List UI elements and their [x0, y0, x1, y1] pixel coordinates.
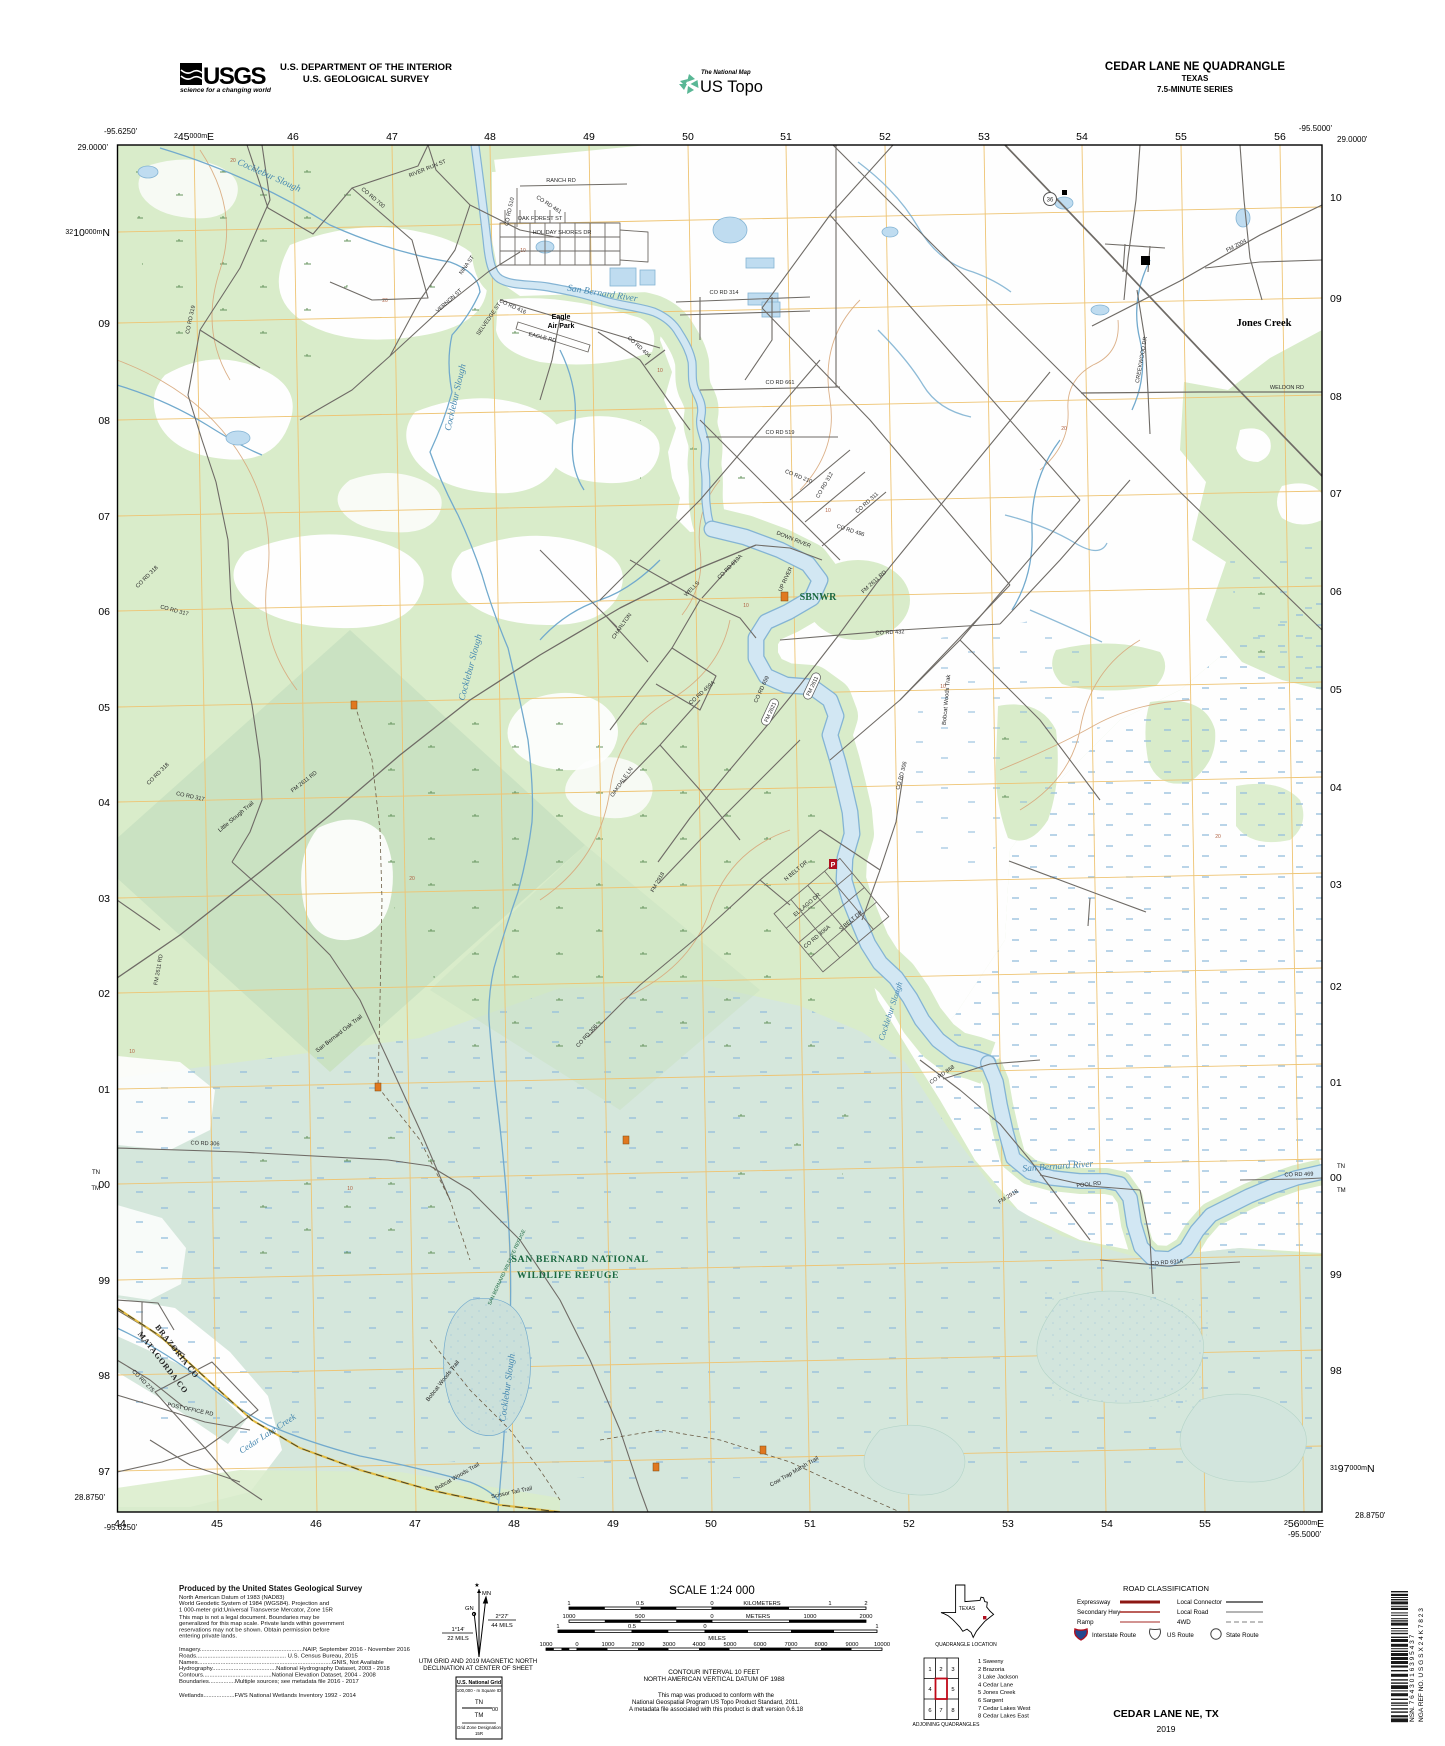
svg-text:This map was produced to confo: This map was produced to conform with th…: [658, 1693, 775, 1699]
svg-text:2019: 2019: [1157, 1724, 1176, 1734]
svg-text:7000: 7000: [785, 1642, 798, 1648]
svg-text:10: 10: [825, 508, 831, 514]
svg-text:2 Brazoria: 2 Brazoria: [978, 1667, 1005, 1673]
svg-text:28.8750': 28.8750': [75, 1493, 106, 1502]
svg-text:SAN BERNARD NATIONAL: SAN BERNARD NATIONAL: [511, 1254, 648, 1265]
svg-text:UTM GRID AND 2019 MAGNETIC NOR: UTM GRID AND 2019 MAGNETIC NORTH: [419, 1658, 538, 1665]
svg-text:TM: TM: [475, 1713, 484, 1719]
svg-text:10: 10: [657, 368, 663, 374]
svg-text:10000: 10000: [874, 1642, 890, 1648]
svg-text:The National Map: The National Map: [701, 70, 751, 76]
svg-text:49: 49: [607, 1518, 619, 1530]
svg-text:1000: 1000: [602, 1642, 615, 1648]
svg-text:-95.6250': -95.6250': [104, 127, 138, 136]
svg-text:Names.........................: Names...................................…: [179, 1660, 385, 1666]
svg-text:MN: MN: [482, 1591, 491, 1597]
svg-text:1: 1: [567, 1601, 570, 1607]
svg-text:4: 4: [928, 1687, 932, 1693]
svg-text:QUADRANGLE LOCATION: QUADRANGLE LOCATION: [935, 1642, 997, 1648]
svg-text:WILDLIFE REFUGE: WILDLIFE REFUGE: [517, 1270, 619, 1281]
svg-text:28.8750': 28.8750': [1355, 1511, 1386, 1520]
svg-text:256000mE: 256000mE: [1284, 1518, 1324, 1530]
svg-text:entering private lands.: entering private lands.: [179, 1634, 237, 1640]
svg-text:reservations may not be shown.: reservations may not be shown. Obtain pe…: [179, 1627, 330, 1633]
svg-text:55: 55: [1199, 1518, 1211, 1530]
svg-text:1: 1: [828, 1601, 831, 1607]
svg-text:This map is not a legal docume: This map is not a legal document. Bounda…: [179, 1615, 320, 1621]
svg-text:Local Road: Local Road: [1177, 1609, 1209, 1616]
svg-text:3 Lake Jackson: 3 Lake Jackson: [978, 1675, 1018, 1681]
svg-text:4WD: 4WD: [1177, 1619, 1191, 1626]
svg-text:10: 10: [347, 1186, 353, 1192]
svg-text:Expressway: Expressway: [1077, 1599, 1111, 1606]
svg-text:7: 7: [939, 1708, 942, 1714]
svg-text:3197000mN: 3197000mN: [1330, 1463, 1375, 1475]
svg-text:HOLIDAY SHORES DR: HOLIDAY SHORES DR: [533, 230, 592, 236]
svg-text:Jones Creek: Jones Creek: [1237, 318, 1292, 329]
svg-text:15R: 15R: [475, 1731, 483, 1736]
svg-text:1: 1: [556, 1624, 559, 1630]
svg-text:U.S. National Grid: U.S. National Grid: [457, 1680, 501, 1686]
svg-text:science for a changing world: science for a changing world: [180, 87, 272, 94]
svg-text:46: 46: [310, 1518, 322, 1530]
svg-text:SBNWR: SBNWR: [800, 592, 837, 603]
svg-text:NSN. 7 6 4 3 0 1 6 3 9 5 4 3: NSN. 7 6 4 3 0 1 6 3 9 5 4 3 7: [1409, 1634, 1416, 1722]
svg-text:09: 09: [1330, 293, 1342, 305]
svg-text:National Geospatial Program US: National Geospatial Program US Topo Prod…: [632, 1700, 800, 1706]
svg-text:USGS: USGS: [203, 63, 267, 90]
svg-text:CEDAR LANE NE QUADRANGLE: CEDAR LANE NE QUADRANGLE: [1105, 61, 1286, 73]
svg-text:500: 500: [635, 1614, 645, 1620]
svg-text:US Route: US Route: [1167, 1632, 1194, 1639]
svg-text:54: 54: [1101, 1518, 1113, 1530]
svg-text:20: 20: [382, 298, 388, 304]
svg-text:36: 36: [1047, 198, 1054, 204]
svg-text:ADJOINING QUADRANGLES: ADJOINING QUADRANGLES: [913, 1722, 981, 1728]
svg-text:6000: 6000: [754, 1642, 767, 1648]
svg-text:2: 2: [864, 1601, 867, 1607]
svg-text:1000: 1000: [540, 1642, 553, 1648]
svg-text:-95.6250': -95.6250': [104, 1523, 138, 1532]
svg-text:01: 01: [98, 1084, 110, 1096]
svg-text:20: 20: [1061, 426, 1067, 432]
svg-text:46: 46: [287, 131, 299, 143]
svg-text:NORTH AMERICAN VERTICAL DATUM: NORTH AMERICAN VERTICAL DATUM OF 1988: [643, 1676, 785, 1683]
svg-text:WELDON RD: WELDON RD: [1270, 385, 1304, 391]
svg-text:CO RD 519: CO RD 519: [766, 430, 795, 436]
svg-text:04: 04: [98, 797, 110, 809]
svg-text:Roads.........................: Roads...................................…: [179, 1653, 358, 1659]
svg-text:Wetlands...................FWS: Wetlands...................FWS National …: [179, 1693, 357, 1699]
svg-text:Air Park: Air Park: [548, 323, 575, 330]
svg-text:CONTOUR INTERVAL 10 FEET: CONTOUR INTERVAL 10 FEET: [668, 1669, 759, 1676]
svg-text:52: 52: [879, 131, 891, 143]
svg-text:02: 02: [1330, 981, 1342, 993]
svg-text:KILOMETERS: KILOMETERS: [743, 1601, 780, 1607]
svg-text:04: 04: [1330, 782, 1342, 794]
svg-text:CO RD 661: CO RD 661: [766, 380, 795, 386]
svg-text:Boundaries................Mult: Boundaries................Multiple sourc…: [179, 1679, 359, 1685]
svg-text:TN: TN: [1337, 1164, 1345, 1170]
svg-text:0: 0: [710, 1614, 713, 1620]
svg-text:05: 05: [1330, 684, 1342, 696]
svg-text:53: 53: [1002, 1518, 1014, 1530]
svg-text:02: 02: [98, 988, 110, 1000]
svg-text:1: 1: [875, 1624, 878, 1630]
svg-text:SCALE 1:24 000: SCALE 1:24 000: [669, 1585, 755, 1597]
svg-text:0: 0: [703, 1624, 706, 1630]
svg-text:NGA REF NO. U S G S X 2 4 K 7: NGA REF NO. U S G S X 2 4 K 7 8 2 3: [1418, 1608, 1425, 1722]
svg-text:49: 49: [583, 131, 595, 143]
svg-text:0.5: 0.5: [628, 1624, 636, 1630]
svg-text:05: 05: [98, 702, 110, 714]
svg-text:51: 51: [804, 1518, 816, 1530]
svg-text:09: 09: [98, 318, 110, 330]
svg-text:07: 07: [1330, 488, 1342, 500]
svg-text:Local Connector: Local Connector: [1177, 1599, 1222, 1606]
svg-text:DECLINATION AT CENTER OF SHEET: DECLINATION AT CENTER OF SHEET: [423, 1665, 533, 1672]
svg-text:07: 07: [98, 511, 110, 523]
svg-text:44 MILS: 44 MILS: [491, 1623, 513, 1629]
svg-text:00: 00: [1330, 1172, 1342, 1184]
svg-text:06: 06: [1330, 586, 1342, 598]
svg-text:52: 52: [903, 1518, 915, 1530]
svg-text:3: 3: [951, 1667, 954, 1673]
svg-text:CO RD 314: CO RD 314: [710, 290, 739, 296]
svg-text:0.5: 0.5: [636, 1601, 644, 1607]
svg-text:08: 08: [98, 415, 110, 427]
svg-text:03: 03: [98, 893, 110, 905]
svg-text:8000: 8000: [815, 1642, 828, 1648]
svg-text:CEDAR LANE NE, TX: CEDAR LANE NE, TX: [1113, 1708, 1219, 1720]
svg-text:2: 2: [939, 1667, 942, 1673]
svg-text:Secondary Hwy: Secondary Hwy: [1077, 1609, 1121, 1616]
svg-text:6 Sargent: 6 Sargent: [978, 1698, 1004, 1704]
svg-text:06: 06: [98, 606, 110, 618]
svg-text:7 Cedar Lakes West: 7 Cedar Lakes West: [978, 1706, 1031, 1712]
svg-text:5 Jones Creek: 5 Jones Creek: [978, 1690, 1015, 1696]
svg-text:1: 1: [928, 1667, 931, 1673]
svg-text:10: 10: [743, 603, 749, 609]
svg-text:51: 51: [780, 131, 792, 143]
svg-text:00: 00: [98, 1179, 110, 1191]
svg-text:RANCH RD: RANCH RD: [546, 178, 576, 184]
svg-text:TN: TN: [92, 1170, 100, 1176]
svg-text:8: 8: [951, 1708, 954, 1714]
svg-text:U.S. DEPARTMENT OF THE INTERIO: U.S. DEPARTMENT OF THE INTERIOR: [280, 62, 452, 73]
svg-text:29.0000': 29.0000': [78, 143, 109, 152]
svg-text:53: 53: [978, 131, 990, 143]
svg-text:4000: 4000: [693, 1642, 706, 1648]
svg-text:98: 98: [98, 1370, 110, 1382]
svg-text:2°27': 2°27': [495, 1614, 508, 1620]
svg-text:29.0000': 29.0000': [1337, 135, 1368, 144]
svg-text:Contours......................: Contours................................…: [179, 1673, 376, 1679]
svg-text:CO RD 306: CO RD 306: [190, 1140, 219, 1147]
svg-text:10: 10: [1330, 192, 1342, 204]
svg-text:54: 54: [1076, 131, 1088, 143]
svg-text:TM: TM: [1337, 1188, 1346, 1194]
svg-text:5: 5: [951, 1687, 954, 1693]
svg-text:1 000-meter grid:Universal Tra: 1 000-meter grid:Universal Transverse Me…: [179, 1607, 333, 1613]
svg-text:TEXAS: TEXAS: [1182, 74, 1209, 83]
svg-text:Interstate Route: Interstate Route: [1092, 1632, 1137, 1639]
svg-text:47: 47: [409, 1518, 421, 1530]
svg-text:generalized for this map scale: generalized for this map scale. Private …: [179, 1621, 344, 1627]
svg-text:North American Datum of 1983 (: North American Datum of 1983 (NAD83): [179, 1595, 284, 1601]
svg-text:Grid Zone Designation: Grid Zone Designation: [457, 1725, 501, 1730]
svg-text:3210000mN: 3210000mN: [65, 227, 110, 239]
svg-text:GN: GN: [465, 1606, 474, 1612]
svg-text:ROAD CLASSIFICATION: ROAD CLASSIFICATION: [1123, 1584, 1209, 1593]
svg-text:-95.5000': -95.5000': [1299, 124, 1333, 133]
svg-text:20: 20: [409, 876, 415, 882]
svg-text:01: 01: [1330, 1077, 1342, 1089]
svg-text:METERS: METERS: [746, 1614, 770, 1620]
svg-text:3000: 3000: [663, 1642, 676, 1648]
svg-text:TM: TM: [91, 1186, 100, 1192]
svg-text:1°14': 1°14': [451, 1627, 464, 1633]
svg-text:45: 45: [211, 1518, 223, 1530]
svg-text:4 Cedar Lane: 4 Cedar Lane: [978, 1682, 1013, 1688]
svg-text:55: 55: [1175, 131, 1187, 143]
svg-text:48: 48: [508, 1518, 520, 1530]
svg-text:2000: 2000: [632, 1642, 645, 1648]
svg-text:20: 20: [230, 158, 236, 164]
svg-text:56: 56: [1274, 131, 1286, 143]
svg-text:1000: 1000: [563, 1614, 576, 1620]
svg-text:0: 0: [710, 1601, 713, 1607]
svg-text:World Geodetic System of 1984: World Geodetic System of 1984 (WGS84). P…: [179, 1601, 329, 1607]
svg-text:50: 50: [682, 131, 694, 143]
svg-text:97: 97: [98, 1466, 110, 1478]
svg-text:50: 50: [705, 1518, 717, 1530]
svg-text:TN: TN: [475, 1700, 483, 1706]
svg-text:Eagle: Eagle: [552, 314, 571, 321]
svg-text:00: 00: [492, 1707, 498, 1713]
svg-text:48: 48: [484, 131, 496, 143]
svg-text:1000: 1000: [804, 1614, 817, 1620]
svg-text:245000mE: 245000mE: [174, 131, 214, 143]
svg-text:US Topo: US Topo: [700, 78, 763, 96]
svg-text:99: 99: [98, 1275, 110, 1287]
svg-text:0: 0: [575, 1642, 578, 1648]
svg-text:2000: 2000: [860, 1614, 873, 1620]
svg-text:TEXAS: TEXAS: [959, 1606, 976, 1612]
svg-text:A metadata file associated wit: A metadata file associated with this pro…: [629, 1707, 804, 1713]
svg-text:03: 03: [1330, 879, 1342, 891]
svg-text:1 Sweeny: 1 Sweeny: [978, 1659, 1004, 1665]
svg-text:Imagery.......................: Imagery.................................…: [179, 1647, 411, 1653]
svg-text:10: 10: [129, 1049, 135, 1055]
svg-text:8 Cedar Lakes East: 8 Cedar Lakes East: [978, 1714, 1029, 1720]
svg-text:9000: 9000: [846, 1642, 859, 1648]
svg-text:20: 20: [1215, 834, 1221, 840]
svg-text:Produced by the United States: Produced by the United States Geological…: [179, 1584, 363, 1593]
svg-text:U.S. GEOLOGICAL SURVEY: U.S. GEOLOGICAL SURVEY: [303, 74, 430, 85]
svg-text:P: P: [831, 862, 836, 869]
svg-text:22 MILS: 22 MILS: [447, 1636, 469, 1642]
svg-text:State Route: State Route: [1226, 1632, 1259, 1639]
svg-text:OAK FOREST ST: OAK FOREST ST: [518, 216, 563, 222]
svg-text:7.5-MINUTE SERIES: 7.5-MINUTE SERIES: [1157, 85, 1234, 94]
svg-text:98: 98: [1330, 1365, 1342, 1377]
svg-text:Hydrography...................: Hydrography.............................…: [179, 1666, 390, 1672]
svg-text:6: 6: [928, 1708, 931, 1714]
svg-text:99: 99: [1330, 1269, 1342, 1281]
svg-text:100,000 - m Square ID: 100,000 - m Square ID: [457, 1688, 501, 1693]
svg-text:-95.5000': -95.5000': [1288, 1530, 1322, 1539]
svg-text:5000: 5000: [724, 1642, 737, 1648]
svg-text:08: 08: [1330, 391, 1342, 403]
svg-text:47: 47: [386, 131, 398, 143]
svg-text:Ramp: Ramp: [1077, 1619, 1094, 1626]
svg-text:★: ★: [474, 1582, 479, 1589]
svg-text:CO RD 469: CO RD 469: [1284, 1171, 1313, 1178]
